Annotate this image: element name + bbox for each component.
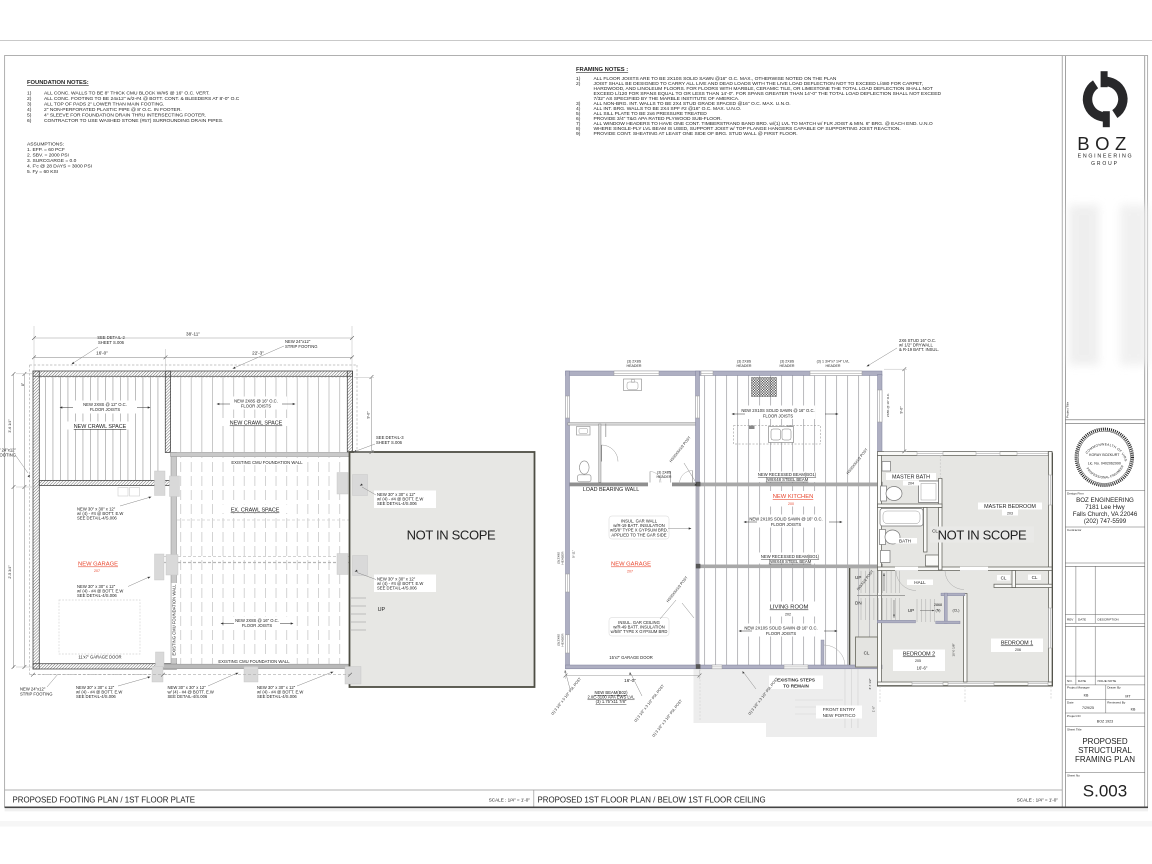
svg-text:ASSUMPTIONS:: ASSUMPTIONS: [27,142,64,148]
svg-text:EXISTING CMU FOUNDATION WALL: EXISTING CMU FOUNDATION WALL [231,460,303,465]
svg-text:1): 1) [27,91,32,97]
svg-text:(N): (N) [936,609,941,613]
svg-text:Lic. No. 0402062990: Lic. No. 0402062990 [1088,462,1121,466]
svg-text:ALL TOP OF PADS 2" LOWER THAN: ALL TOP OF PADS 2" LOWER THAN MAIN FOOTI… [44,102,164,108]
svg-text:3'-7 1/2": 3'-7 1/2" [868,678,872,689]
svg-text:NOT IN SCOPE: NOT IN SCOPE [938,528,1027,543]
svg-text:FLOOR JOISTS: FLOOR JOISTS [766,631,796,636]
svg-text:NEW GARAGE: NEW GARAGE [78,562,118,568]
svg-text:BEDROOM 1: BEDROOM 1 [1001,641,1033,647]
svg-text:HEADER: HEADER [561,551,565,565]
svg-text:SEE DETAIL-4/S.006: SEE DETAIL-4/S.006 [377,501,417,506]
svg-text:Project Title: Project Title [1066,402,1070,418]
svg-text:APPLIED TO THE GAR SIDE: APPLIED TO THE GAR SIDE [611,532,666,537]
svg-text:EXISTING CMU FOUNDATION WALL: EXISTING CMU FOUNDATION WALL [218,659,290,664]
svg-text:FLOOR JOISTS: FLOOR JOISTS [771,522,801,527]
svg-text:(3) 2X8S: (3) 2X8S [780,360,795,364]
svg-text:SEE DETAIL-4/S.006: SEE DETAIL-4/S.006 [168,694,208,699]
svg-text:9): 9) [576,131,581,137]
svg-text:SCALE : 1/4" = 1'-0": SCALE : 1/4" = 1'-0" [1017,798,1059,803]
svg-text:2): 2) [576,81,581,87]
svg-text:3. SURCGARGE = 0.0: 3. SURCGARGE = 0.0 [27,158,77,164]
svg-text:FRAMING NOTES :: FRAMING NOTES : [576,67,628,73]
svg-text:TO REMAIN: TO REMAIN [783,684,809,689]
svg-text:MASTER BEDROOM: MASTER BEDROOM [984,504,1036,510]
svg-text:2. SBV. = 2000 PSI: 2. SBV. = 2000 PSI [27,153,69,159]
svg-text:NEW PORTICO: NEW PORTICO [823,713,856,718]
svg-text:DN: DN [855,601,862,606]
svg-text:EX. CRAWL SPACE: EX. CRAWL SPACE [231,508,280,514]
svg-text:(3) 2X8S: (3) 2X8S [627,360,642,364]
svg-text:PROPOSED FOOTING PLAN / 1ST FL: PROPOSED FOOTING PLAN / 1ST FLOOR PLATE [13,796,196,805]
svg-text:ALL CONC. WALLS TO BE 8" THICK: ALL CONC. WALLS TO BE 8" THICK CMU BLOCK… [44,91,210,97]
svg-text:GROUP: GROUP [1091,161,1119,167]
svg-text:NEW 2X10S SOLID SAWN @ 16" O.C: NEW 2X10S SOLID SAWN @ 16" O.C. [741,408,814,413]
svg-text:FLOOR JOISTS: FLOOR JOISTS [90,407,120,412]
svg-text:4): 4) [27,107,32,113]
svg-text:16'-0": 16'-0" [624,678,636,683]
svg-text:EXISTING STEPS: EXISTING STEPS [777,678,815,683]
svg-text:SHEET S.006: SHEET S.006 [98,340,125,345]
svg-text:REV: REV [1067,617,1074,621]
svg-text:STRUCTURAL: STRUCTURAL [1078,746,1132,755]
svg-text:S.003: S.003 [1083,782,1127,801]
svg-text:10'-0 1/8": 10'-0 1/8" [952,643,956,656]
svg-text:EXISTING CMU FOUNDATION WALL: EXISTING CMU FOUNDATION WALL [171,584,176,656]
svg-text:9'-0": 9'-0" [899,406,903,414]
svg-text:4. F'c @ 28 DAYS = 3000 PSI: 4. F'c @ 28 DAYS = 3000 PSI [27,164,92,170]
svg-text:3'-6 1/4": 3'-6 1/4" [8,419,12,433]
svg-text:2868: 2868 [934,603,942,607]
svg-text:HEADER: HEADER [627,364,642,368]
svg-text:Project Manager: Project Manager [1067,686,1090,690]
svg-text:HEADER: HEADER [826,364,841,368]
svg-text:7/29/25: 7/29/25 [1082,706,1094,710]
svg-text:PROPOSED: PROPOSED [1082,737,1128,746]
svg-text:16'-0": 16'-0" [96,351,108,356]
svg-text:CL: CL [864,651,870,656]
svg-text:NEW 2X10S SOLID SAWN @ 16" O.C: NEW 2X10S SOLID SAWN @ 16" O.C. [744,626,817,631]
svg-text:7181 Lee Hwy: 7181 Lee Hwy [1085,504,1125,511]
svg-text:2" NON-PERFORATED PLASTIC PIPE: 2" NON-PERFORATED PLASTIC PIPE @ 8' O.C.… [44,107,182,113]
svg-text:1. EFP. = 60 PCF: 1. EFP. = 60 PCF [27,147,65,153]
svg-text:206: 206 [1015,648,1021,652]
svg-text:38'-11": 38'-11" [186,332,200,337]
svg-text:SEE DETAIL-4/S.006: SEE DETAIL-4/S.006 [257,694,297,699]
svg-text:PROPOSED 1ST FLOOR PLAN / BELO: PROPOSED 1ST FLOOR PLAN / BELOW 1ST FLOO… [538,796,766,805]
svg-text:NEW CRAWL SPACE: NEW CRAWL SPACE [230,421,283,427]
svg-text:CL: CL [1032,575,1038,580]
svg-text:2'-5 3/4": 2'-5 3/4" [8,565,12,579]
svg-text:SEE DETAIL-4/S.006: SEE DETAIL-4/S.006 [77,593,117,598]
svg-text:NEW CRAWL SPACE: NEW CRAWL SPACE [74,424,127,430]
svg-text:(W8X48 STEEL BEAM: (W8X48 STEEL BEAM [769,559,812,564]
svg-text:Sheet No: Sheet No [1067,774,1080,778]
svg-text:w/5/8" TYPE X GYPSUM BRD: w/5/8" TYPE X GYPSUM BRD [611,629,668,634]
svg-text:DATE: DATE [1078,679,1086,683]
svg-text:(202) 747-5599: (202) 747-5599 [1084,518,1127,525]
svg-text:NEW GARAGE: NEW GARAGE [611,562,651,568]
svg-text:22'-3": 22'-3" [252,351,264,356]
svg-text:SHEET S.006: SHEET S.006 [376,440,403,445]
svg-text:Reviewed By: Reviewed By [1107,700,1126,704]
svg-text:(W8X48 STEEL BEAM: (W8X48 STEEL BEAM [766,477,809,482]
svg-text:Contractor: Contractor [1067,528,1081,532]
svg-text:FLOOR JOISTS: FLOOR JOISTS [763,414,793,419]
svg-text:HEADER: HEADER [780,364,795,368]
svg-text:DESCRIPTION: DESCRIPTION [1098,617,1119,621]
svg-text:3): 3) [27,102,32,108]
svg-text:FRAMING PLAN: FRAMING PLAN [1075,755,1135,764]
svg-text:6): 6) [27,118,32,124]
svg-text:5'-11": 5'-11" [572,550,576,558]
svg-text:NO.: NO. [1067,679,1073,683]
svg-text:Falls Church, VA 22046: Falls Church, VA 22046 [1073,511,1138,518]
svg-text:CL: CL [1001,576,1007,581]
svg-text:Design Firm: Design Firm [1067,491,1084,495]
svg-text:KB: KB [1084,694,1089,698]
svg-text:BOZ: BOZ [1077,133,1132,154]
svg-text:9'-0": 9'-0" [367,411,371,419]
svg-text:NEW 2X10S SOLID SAWN @ 16" O.C: NEW 2X10S SOLID SAWN @ 16" O.C. [749,517,822,522]
svg-text:203: 203 [1007,512,1013,516]
svg-text:DATE: DATE [1078,617,1086,621]
svg-text:CL: CL [932,529,938,534]
svg-text:FLOOR JOISTS: FLOOR JOISTS [241,404,271,409]
svg-text:SEE DETAIL-4/S.006: SEE DETAIL-4/S.006 [377,586,417,591]
svg-text:HEADER: HEADER [737,364,752,368]
svg-text:STRIP FOOTING: STRIP FOOTING [20,691,53,696]
svg-text:HALL: HALL [914,580,926,585]
svg-text:(3) 2X8S: (3) 2X8S [657,471,672,475]
svg-text:FOUNDATION NOTES:: FOUNDATION NOTES: [27,80,89,86]
svg-text:SEE DETAIL-4/S.006: SEE DETAIL-4/S.006 [76,694,116,699]
svg-text:UP: UP [908,608,914,613]
svg-text:BOZ ENGINEERING: BOZ ENGINEERING [1076,497,1134,504]
svg-text:FLOOR JOISTS: FLOOR JOISTS [242,623,272,628]
svg-text:200: 200 [788,502,794,506]
svg-text:UP: UP [855,575,861,580]
svg-text:11'x7' GARAGE DOOR: 11'x7' GARAGE DOOR [78,655,121,660]
svg-text:ISSUE NOTE: ISSUE NOTE [1098,679,1117,683]
svg-text:UP: UP [378,607,386,613]
svg-text:HEADER: HEADER [561,633,565,647]
svg-text:16'-6": 16'-6" [917,666,928,671]
svg-text:LOAD BEARING WALL: LOAD BEARING WALL [583,487,639,493]
svg-text:5): 5) [27,113,32,119]
svg-text:204: 204 [908,482,914,486]
svg-text:205: 205 [915,659,921,663]
svg-text:SCALE : 1/4" = 1'-0": SCALE : 1/4" = 1'-0" [489,798,531,803]
svg-text:ENGINEERING: ENGINEERING [1078,154,1134,160]
svg-text:(3) 1 3/4"x7 1/4" LVL: (3) 1 3/4"x7 1/4" LVL [817,360,850,364]
svg-text:2): 2) [27,96,32,102]
svg-text:PROVIDE CONT. SHEATING AT LEAS: PROVIDE CONT. SHEATING AT LEAST ONE SIDE… [594,131,798,137]
svg-text:Drawn By: Drawn By [1107,686,1121,690]
svg-text:NOT IN SCOPE: NOT IN SCOPE [407,528,496,543]
svg-text:HEADER: HEADER [657,475,672,479]
svg-text:CONTRACTOR TO USE WASHED STONE: CONTRACTOR TO USE WASHED STONE (#57) SUR… [44,118,223,124]
svg-text:207: 207 [94,569,100,573]
svg-text:KB: KB [1131,708,1136,712]
svg-text:BOZ 1923: BOZ 1923 [1097,719,1113,723]
svg-text:FRONT ENTRY: FRONT ENTRY [823,707,856,712]
svg-text:BATH: BATH [899,539,911,544]
svg-text:LIVING ROOM: LIVING ROOM [770,605,809,611]
svg-text:1'-0": 1'-0" [872,706,876,712]
svg-text:(CL): (CL) [953,609,960,613]
svg-text:Project ID: Project ID [1067,714,1081,718]
svg-text:Date: Date [1067,700,1074,704]
svg-text:202: 202 [785,613,791,617]
svg-text:SEE DETAIL-4/S.006: SEE DETAIL-4/S.006 [77,516,117,521]
svg-text:15'x7' GARAGE DOOR: 15'x7' GARAGE DOOR [609,655,653,660]
svg-text:2X8S @ 16" O.C.: 2X8S @ 16" O.C. [886,393,890,417]
svg-text:(3) 1.75"x11 7/8": (3) 1.75"x11 7/8" [596,699,627,704]
svg-text:4" SLEEVE FOR FOUNDATION DRAIN: 4" SLEEVE FOR FOUNDATION DRAIN THRU INTE… [44,113,206,119]
svg-text:NEW KITCHEN: NEW KITCHEN [773,494,814,500]
svg-text:BEDROOM 2: BEDROOM 2 [903,652,935,658]
svg-text:& R-19 BATT. INSUL.: & R-19 BATT. INSUL. [899,347,939,352]
svg-text:KORAY BOZKURT: KORAY BOZKURT [1089,453,1120,457]
svg-text:5. Fy = 60 KSI: 5. Fy = 60 KSI [27,169,58,175]
svg-text:ALL CONC. FOOTING TO BE 24x12": ALL CONC. FOOTING TO BE 24x12" w/2-#4 @ … [44,96,240,102]
svg-text:MT: MT [1125,695,1131,699]
svg-text:207: 207 [627,570,633,574]
svg-text:Sheet Title: Sheet Title [1067,728,1082,732]
svg-text:(3) 2X8S: (3) 2X8S [737,360,752,364]
svg-text:STRIP FOOTING: STRIP FOOTING [285,344,318,349]
svg-text:MASTER BATH: MASTER BATH [892,475,930,481]
